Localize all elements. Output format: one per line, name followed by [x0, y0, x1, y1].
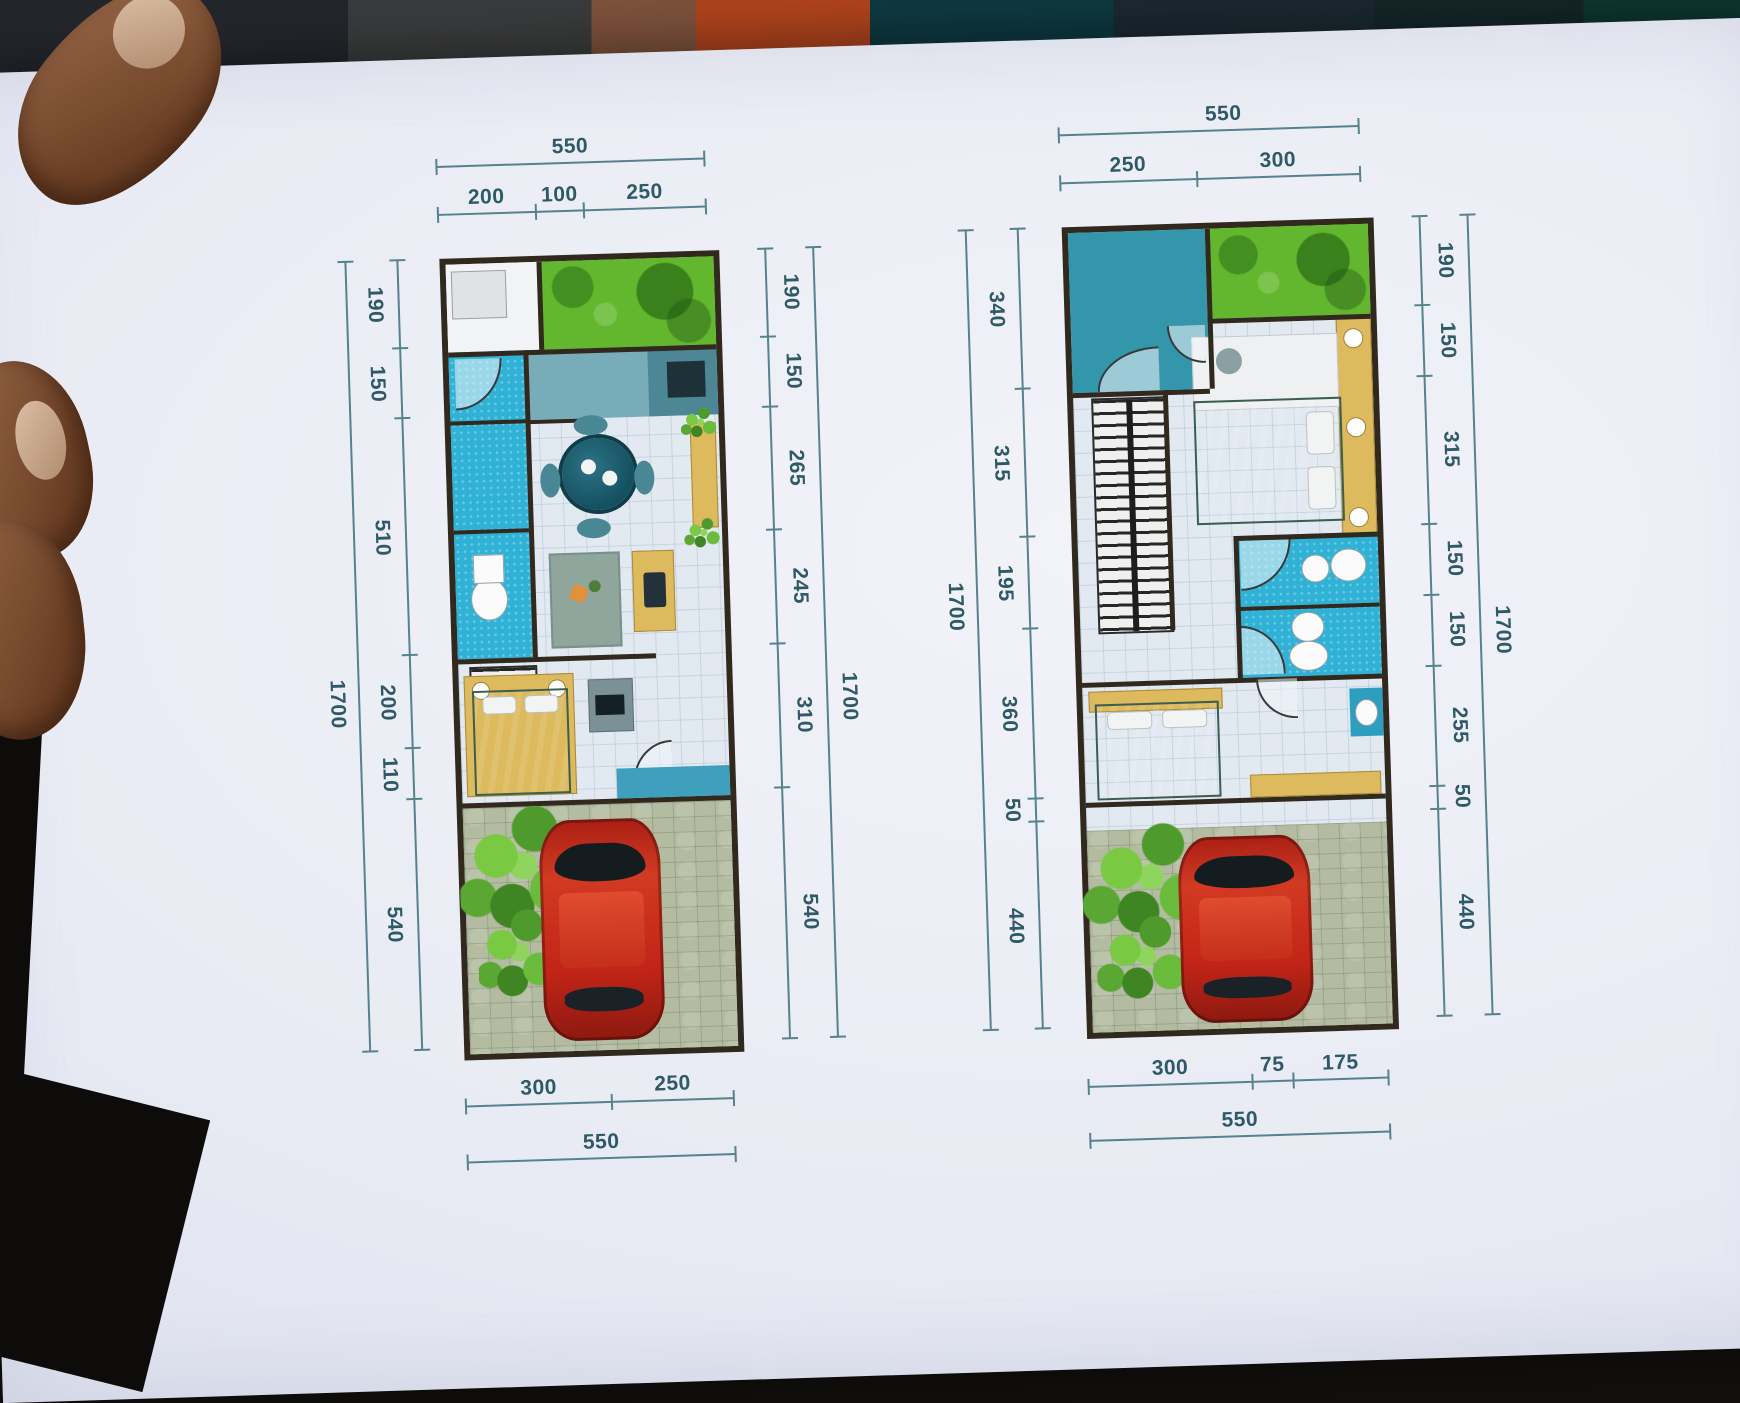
dim-label: 190	[1432, 241, 1457, 278]
dim-tick	[1010, 227, 1026, 230]
dim-tick	[760, 336, 776, 339]
dim-label: 100	[541, 183, 578, 208]
toilet	[470, 578, 508, 621]
dim-tick	[1429, 784, 1445, 787]
dim-label: 1700	[325, 680, 351, 729]
tv-cabinet	[587, 678, 634, 733]
dim-tick	[1421, 523, 1437, 526]
dim-label: 300	[520, 1076, 557, 1101]
dim-line	[965, 230, 992, 1030]
dim-label: 550	[1205, 102, 1242, 127]
plate	[602, 470, 617, 485]
car-windshield	[1193, 855, 1294, 890]
bathroom-2	[1236, 603, 1382, 678]
toilet	[1330, 548, 1368, 582]
plate	[580, 459, 595, 474]
car-rear-window	[1204, 976, 1292, 999]
dim-rail-left-segments: 190 150 510 200 110 540	[397, 260, 422, 1050]
sink	[1355, 698, 1379, 726]
dim-label: 195	[992, 565, 1017, 602]
dim-tick	[774, 786, 790, 789]
dim-label: 150	[365, 366, 390, 403]
dim-tick	[770, 642, 786, 645]
rug-decor	[568, 583, 589, 604]
dim-tick	[392, 347, 408, 350]
sideboard-decor	[643, 572, 666, 607]
bed2	[1095, 701, 1222, 801]
pillow	[1106, 710, 1152, 730]
dim-tick	[1359, 166, 1362, 182]
dim-tick	[705, 198, 708, 214]
stair-rail	[1126, 400, 1139, 632]
dim-label: 1700	[837, 672, 863, 721]
dim-tick	[362, 1050, 378, 1053]
dim-label: 300	[1259, 148, 1296, 173]
pillow	[1162, 709, 1208, 729]
wall	[533, 653, 656, 662]
bathroom-strip	[448, 351, 533, 660]
dim-tick	[402, 654, 418, 657]
console-table	[1250, 771, 1382, 798]
dim-tick	[757, 247, 773, 250]
ground-floor-plot	[439, 250, 744, 1060]
dim-line	[466, 1097, 734, 1107]
dim-label: 1700	[1490, 605, 1516, 654]
car-windshield	[553, 842, 646, 882]
dim-tick	[1426, 664, 1442, 667]
dim-label: 315	[1438, 431, 1463, 468]
dim-tick	[337, 261, 353, 264]
stove	[667, 360, 707, 397]
door-arc	[1256, 678, 1298, 720]
dim-rail-left-total: 1700	[966, 230, 991, 1030]
plant	[681, 406, 720, 443]
carport	[1087, 821, 1393, 1033]
dim-label: 540	[382, 906, 407, 943]
plant	[684, 517, 723, 554]
dim-label: 50	[1000, 798, 1025, 823]
finger-nail	[8, 396, 73, 485]
dim-tick	[1416, 375, 1432, 378]
door-arc	[455, 358, 504, 410]
chair	[540, 463, 561, 498]
car	[1177, 834, 1315, 1024]
paper-sheet: 550 200 100 250 190 150 510 200	[0, 17, 1740, 1403]
stairs	[1091, 397, 1174, 635]
dim-rail-right-segments: 190 150 265 245 310 540	[765, 249, 790, 1039]
pillow	[524, 694, 559, 713]
dim-rail-top-segments: 200 100 250	[438, 207, 706, 215]
dim-rail-top-total: 550	[1059, 126, 1359, 135]
door-arc	[1239, 537, 1292, 590]
car-roof	[1199, 896, 1293, 962]
dim-label: 300	[1151, 1056, 1188, 1081]
dim-tick	[1357, 118, 1360, 134]
pillow	[482, 695, 517, 714]
dim-tick	[1485, 1013, 1501, 1016]
floor-plan-upper: 550 250 300 340 315 195 360 50 440	[938, 81, 1552, 1189]
dim-label: 265	[784, 449, 809, 486]
dim-line	[1060, 173, 1360, 184]
dim-tick	[1423, 594, 1439, 597]
dim-tick	[1058, 127, 1061, 143]
dim-tick	[1430, 807, 1446, 810]
dim-line	[1059, 125, 1359, 136]
pillow	[1308, 466, 1337, 510]
dim-label: 510	[369, 519, 394, 556]
dim-tick	[1389, 1123, 1392, 1139]
dim-line	[1089, 1077, 1389, 1088]
sink	[1301, 554, 1330, 582]
dim-label: 175	[1322, 1050, 1359, 1075]
car-rear-window	[564, 986, 644, 1013]
dim-rail-right-segments: 190 150 315 150 150 255 50 440	[1419, 216, 1444, 1016]
toilet-tank	[473, 554, 504, 585]
dim-tick	[1019, 535, 1035, 538]
dim-label: 550	[583, 1130, 620, 1155]
dim-label: 440	[1003, 907, 1028, 944]
chair	[634, 461, 655, 496]
service-room	[446, 262, 540, 353]
sink	[1291, 612, 1326, 643]
dim-tick	[1015, 387, 1031, 390]
dim-label: 110	[377, 756, 402, 792]
dim-tick	[437, 207, 440, 223]
dim-tick	[1459, 213, 1475, 216]
washer	[451, 270, 507, 320]
dim-tick	[983, 1029, 999, 1032]
dim-label: 1700	[943, 582, 969, 631]
rug-decor	[589, 580, 601, 592]
dim-tick	[1089, 1133, 1092, 1149]
car-roof	[558, 891, 645, 969]
dim-label: 200	[375, 684, 400, 721]
terrace-pool	[617, 765, 730, 799]
dim-tick	[733, 1090, 736, 1106]
wardrobe-knob	[1343, 328, 1364, 349]
thumb-nail	[98, 0, 200, 83]
dim-tick	[1387, 1069, 1390, 1085]
dim-tick	[1035, 1027, 1051, 1030]
dim-tick	[394, 417, 410, 420]
dim-tick	[1059, 175, 1062, 191]
toilet	[1289, 640, 1329, 671]
dim-label: 150	[1435, 321, 1460, 358]
dim-tick	[703, 151, 706, 167]
bed1	[1193, 397, 1345, 526]
dim-label: 150	[1444, 611, 1469, 648]
dining-table	[561, 437, 635, 511]
wall	[1082, 673, 1382, 687]
dim-label: 250	[626, 180, 663, 205]
dim-rail-top-total: 550	[436, 159, 704, 167]
dim-tick	[435, 159, 438, 175]
dim-tick	[405, 747, 421, 750]
dim-label: 340	[984, 291, 1009, 328]
dim-label: 315	[988, 445, 1013, 482]
sideboard	[632, 550, 677, 632]
dim-tick	[766, 529, 782, 532]
pillow	[1306, 411, 1335, 455]
dim-rail-left-segments: 340 315 195 360 50 440	[1018, 229, 1043, 1029]
dim-tick	[830, 1036, 846, 1039]
dim-tick	[805, 246, 821, 249]
dim-label: 245	[787, 567, 812, 604]
dim-tick	[1195, 171, 1198, 187]
dim-tick	[1028, 820, 1044, 823]
vanity	[1349, 688, 1383, 737]
door-arc	[1239, 625, 1286, 675]
dim-tick	[1411, 215, 1427, 218]
wardrobe-knob	[1349, 507, 1370, 528]
dim-rail-bottom-segments: 300 75 175	[1089, 1078, 1389, 1087]
chair	[574, 415, 609, 436]
dim-tick	[1087, 1079, 1090, 1095]
dim-label: 540	[797, 893, 822, 930]
dim-tick	[1251, 1074, 1254, 1090]
dim-tick	[611, 1094, 614, 1110]
dim-tick	[1437, 1014, 1453, 1017]
dim-label: 150	[780, 352, 805, 389]
tv-screen	[596, 694, 625, 714]
wall	[458, 657, 533, 664]
door-arc	[1096, 347, 1159, 393]
chair	[577, 517, 612, 538]
dim-rail-bottom-segments: 300 250	[466, 1098, 734, 1106]
dim-tick	[465, 1098, 468, 1114]
dim-label: 190	[362, 287, 387, 324]
rug	[548, 552, 622, 649]
dim-label: 200	[468, 185, 505, 210]
dim-tick	[762, 405, 778, 408]
dim-tick	[1022, 627, 1038, 630]
dim-label: 150	[1442, 540, 1467, 577]
wardrobe-knob	[1346, 417, 1367, 438]
dim-label: 50	[1449, 784, 1474, 809]
carport	[463, 800, 739, 1054]
bathroom-1	[1233, 532, 1379, 608]
dim-rail-bottom-total: 550	[468, 1154, 736, 1162]
dim-tick	[466, 1154, 469, 1170]
dim-tick	[534, 204, 537, 220]
dim-label: 250	[654, 1071, 691, 1096]
car	[538, 817, 665, 1042]
void-balcony	[1068, 229, 1209, 393]
garden-roof	[1204, 224, 1370, 319]
dim-label: 75	[1260, 1053, 1285, 1078]
wall	[454, 528, 529, 534]
dim-tick	[958, 229, 974, 232]
dim-label: 250	[1109, 153, 1146, 178]
dim-label: 550	[1221, 1108, 1258, 1133]
dim-label: 440	[1453, 893, 1478, 930]
dim-tick	[782, 1037, 798, 1040]
dim-tick	[734, 1146, 737, 1162]
dim-rail-top-segments: 250 300	[1060, 174, 1360, 183]
upper-floor-plot	[1062, 218, 1399, 1039]
dim-tick	[1414, 304, 1430, 307]
dim-tick	[389, 259, 405, 262]
dim-tick	[406, 798, 422, 801]
dim-label: 550	[551, 134, 588, 159]
dim-tick	[1028, 797, 1044, 800]
dim-label: 310	[791, 696, 816, 733]
garden-area	[537, 256, 717, 350]
dim-rail-bottom-total: 550	[1090, 1131, 1390, 1140]
dim-line	[436, 158, 704, 168]
dim-line	[468, 1153, 736, 1163]
dim-label: 255	[1447, 706, 1472, 743]
wall	[450, 420, 525, 426]
dim-tick	[583, 202, 586, 218]
dim-label: 360	[996, 695, 1021, 732]
dim-tick	[414, 1049, 430, 1052]
bed	[472, 688, 570, 796]
dim-label: 190	[778, 273, 803, 310]
floor-plan-ground: 550 200 100 250 190 150 510 200	[315, 118, 893, 1205]
dim-tick	[1292, 1072, 1295, 1088]
